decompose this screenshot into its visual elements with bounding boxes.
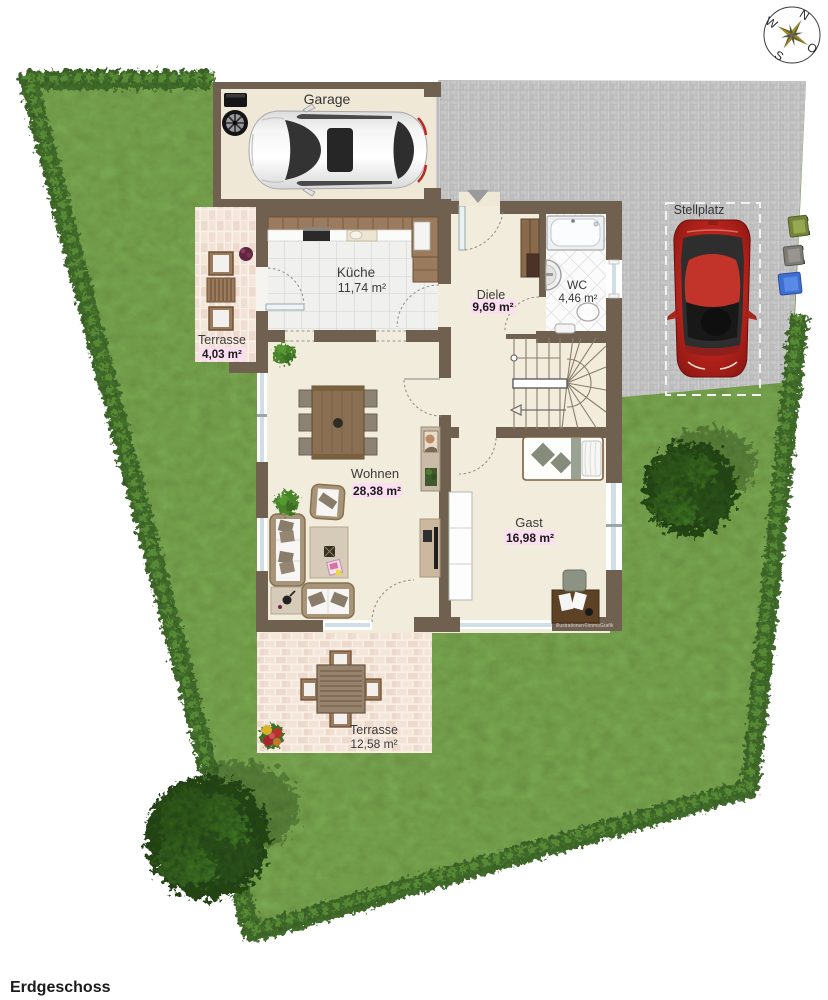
svg-text:4,46 m²: 4,46 m² <box>559 293 598 305</box>
svg-text:12,58 m²: 12,58 m² <box>350 737 397 751</box>
svg-text:Terrasse: Terrasse <box>350 723 398 737</box>
svg-text:Küche: Küche <box>337 265 375 280</box>
svg-text:11,74 m²: 11,74 m² <box>338 281 386 295</box>
svg-text:28,38 m²: 28,38 m² <box>353 484 401 498</box>
svg-text:16,98 m²: 16,98 m² <box>506 531 554 545</box>
svg-text:Terrasse: Terrasse <box>198 333 246 347</box>
svg-text:4,03 m²: 4,03 m² <box>202 349 242 361</box>
svg-text:Garage: Garage <box>304 91 351 107</box>
svg-text:9,69 m²: 9,69 m² <box>472 300 513 314</box>
svg-text:Wohnen: Wohnen <box>351 466 399 481</box>
svg-text:Gast: Gast <box>515 515 543 530</box>
svg-text:WC: WC <box>567 278 587 292</box>
svg-text:illustrationen©immoGrafik: illustrationen©immoGrafik <box>556 622 614 629</box>
svg-text:Stellplatz: Stellplatz <box>674 203 725 217</box>
svg-text:Erdgeschoss: Erdgeschoss <box>10 979 111 996</box>
